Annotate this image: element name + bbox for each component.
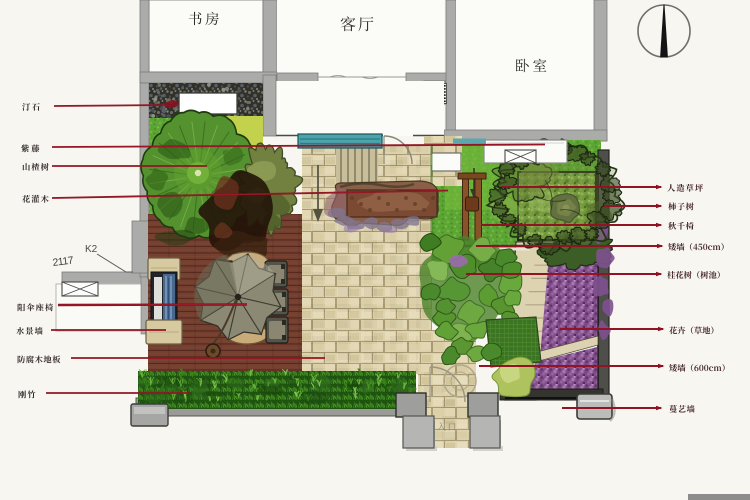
svg-text:K2: K2: [85, 244, 98, 255]
svg-text:2117: 2117: [52, 254, 75, 268]
